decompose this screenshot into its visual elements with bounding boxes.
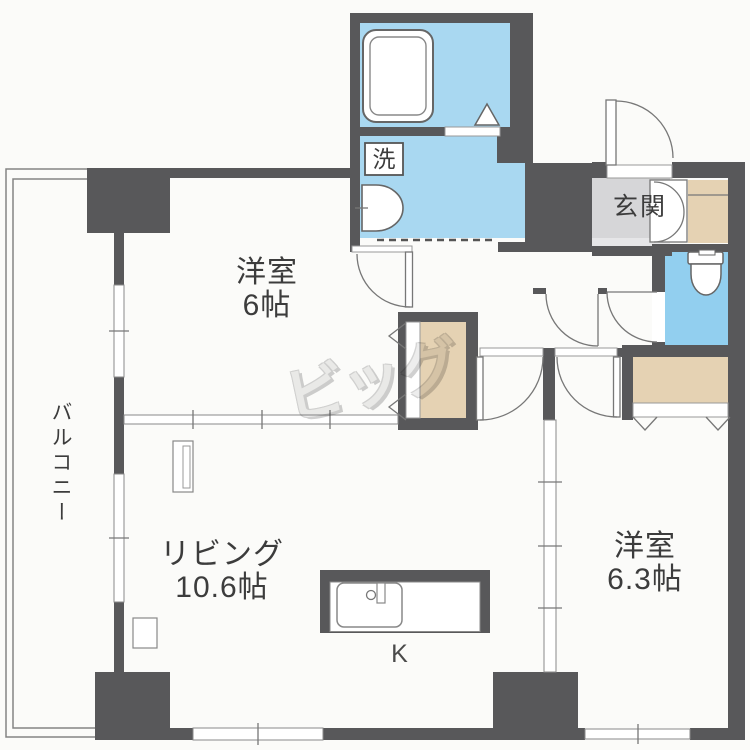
wall-segment xyxy=(350,13,360,252)
toilet-door-swing-arc xyxy=(607,292,657,342)
room-label-balcony: バルコニー xyxy=(50,383,71,543)
kitchen-label: K xyxy=(384,641,416,669)
bathtub-icon xyxy=(363,30,433,122)
wall-segment xyxy=(114,233,124,285)
door-leaf xyxy=(614,357,621,417)
wall-segment xyxy=(598,288,607,294)
wall-segment xyxy=(114,377,124,474)
wall-pillar xyxy=(95,672,170,740)
toilet-tank-lid xyxy=(699,250,715,255)
wall-segment xyxy=(533,288,546,294)
closet-door-track xyxy=(633,403,728,417)
wall-segment xyxy=(510,13,533,130)
hall-door-swing-arc xyxy=(546,294,598,346)
entrance-door-swing-arc xyxy=(616,101,673,158)
wall-segment xyxy=(592,162,607,178)
entrance-cabinet xyxy=(688,180,728,243)
laundry-mark-label: 洗 xyxy=(365,147,403,172)
wall-segment xyxy=(170,728,193,740)
door-leaf xyxy=(406,252,413,307)
sink-faucet xyxy=(377,583,385,603)
wall-segment xyxy=(622,348,633,420)
door-swing-arc xyxy=(357,254,410,307)
wall-segment xyxy=(622,345,730,357)
floorplan-page: ビッグ 洋室 6帖 リビング 10.6帖 洋室 6.3帖 玄関 洗 K バルコニ… xyxy=(0,0,750,750)
door-swing-arc xyxy=(480,357,543,420)
wall-segment xyxy=(114,602,124,672)
folding-door-mark xyxy=(633,417,657,430)
door-swing-arc xyxy=(557,357,617,417)
toilet-door-opening xyxy=(652,292,665,342)
room-label-bedroom-east: 洋室 6.3帖 xyxy=(565,530,725,596)
room-label-entrance: 玄関 xyxy=(598,194,682,222)
wall-segment xyxy=(728,162,745,740)
room-name: リビング xyxy=(160,538,284,571)
wall-segment xyxy=(87,168,352,178)
wall-pillar xyxy=(493,672,578,740)
wall-segment xyxy=(690,728,745,740)
door-opening xyxy=(352,246,412,252)
room-label-bedroom-west: 洋室 6帖 xyxy=(187,256,347,322)
door-opening xyxy=(555,348,617,356)
sink-drain xyxy=(367,591,376,600)
wall-segment xyxy=(500,127,510,136)
bath-door-sill xyxy=(445,127,500,136)
wall-segment xyxy=(323,728,493,740)
wall-segment xyxy=(543,348,555,420)
wall-segment xyxy=(360,127,445,136)
wall-segment xyxy=(617,348,622,357)
wall-segment xyxy=(652,246,665,292)
room-size: 6.3帖 xyxy=(565,563,725,596)
closet-east-interior xyxy=(633,357,728,403)
wall-segment xyxy=(533,163,592,250)
entrance-door-leaf xyxy=(606,100,616,165)
entrance-door-sill xyxy=(607,165,672,178)
wall-segment xyxy=(525,163,533,250)
room-label-living: リビング 10.6帖 xyxy=(142,538,302,604)
pipe-space xyxy=(133,618,157,648)
room-name: 洋室 xyxy=(614,530,676,563)
door-opening xyxy=(480,348,543,356)
room-size: 6帖 xyxy=(187,289,347,322)
folding-door-mark xyxy=(706,417,730,430)
wall-segment xyxy=(578,728,585,740)
room-name: 洋室 xyxy=(236,256,298,289)
kitchen-sink-icon xyxy=(337,583,402,627)
room-size: 10.6帖 xyxy=(142,571,302,604)
wall-segment xyxy=(350,13,533,23)
